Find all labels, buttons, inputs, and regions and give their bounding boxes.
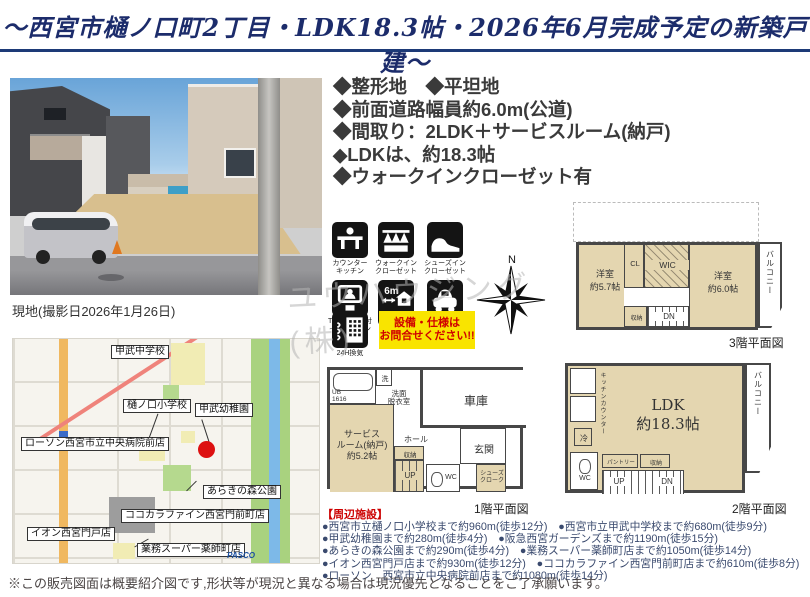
room-storage-3f: 収納: [624, 306, 647, 327]
title-divider: [0, 49, 810, 52]
kitchen-sink-box: [570, 396, 596, 422]
map-park-block: [163, 465, 191, 491]
map-school-block-north: [171, 343, 205, 385]
room-wc-2f: WC: [570, 452, 598, 490]
room-entrance: 玄関: [460, 428, 506, 464]
map-label-lawson: ローソン西宮市立中央病院前店: [21, 437, 169, 451]
stairs-2f: UP DN: [602, 470, 684, 494]
room-east: 洋室 約6.0帖: [689, 245, 755, 327]
kitchen-counter-label: キッチンカウンター: [598, 372, 607, 435]
room-service: サービス ルーム(納戸) 約5.2帖: [330, 404, 394, 492]
photo-cone: [112, 240, 122, 254]
feature-item: ◆整形地 ◆平坦地: [333, 76, 803, 99]
map-location-dot: [198, 441, 215, 458]
photo-caption: 現地(撮影日2026年1月26日): [12, 301, 175, 320]
map-kindergarten-block: [181, 431, 195, 443]
compass-rose: N: [468, 250, 554, 336]
room-wc-1f: WC: [426, 464, 460, 492]
floorplan-1f-body: UB 1616 洗 洗面 脱衣室 車庫 サービス ルーム(納戸) 約5.2帖 ホ…: [327, 367, 523, 489]
equipment-shoes-in-closet: シューズイン クローゼット: [417, 222, 473, 276]
facility-line: ●甲武幼稚園まで約280m(徒歩4分) ●阪急西宮ガーデンズまで約1190m(徒…: [322, 533, 808, 545]
stairs-dn-label: DN: [655, 477, 679, 486]
counter-kitchen-icon: [332, 222, 368, 258]
floorplan-3f: 洋室 約5.7帖 CL WIC 洋室 約6.0帖 収納 DN バルコニー 3階平…: [571, 196, 807, 348]
map-label-cocokara: ココカラファイン西宮門前町店: [121, 509, 269, 523]
photo-manhole: [98, 274, 124, 281]
floorplan-3f-body: 洋室 約5.7帖 CL WIC 洋室 約6.0帖 収納 DN: [576, 242, 758, 330]
room-hall: ホール: [396, 434, 436, 445]
ventilation-24h-icon: [332, 312, 368, 348]
walk-in-closet-icon: [378, 222, 414, 258]
floorplan-2f: キッチンカウンター LDK 約18.3帖 冷 WC パントリー 収納 UP DN…: [560, 358, 808, 508]
stairs-dn-3f: DN: [647, 306, 689, 327]
compass-north-label: N: [508, 254, 516, 266]
kitchen-counter-box: [570, 368, 596, 394]
photo-right-sliver: [280, 78, 322, 228]
equipment-24h-ventilation: 24H換気: [322, 312, 378, 358]
photo-left-house-window: [44, 108, 66, 120]
site-photo: [10, 78, 322, 295]
shoes-in-closet-icon: [427, 222, 463, 258]
map-label-junior-high: 甲武中学校: [111, 345, 169, 359]
room-garage: 車庫: [420, 370, 526, 428]
map-leader: [149, 414, 159, 439]
room-cl: CL: [624, 245, 644, 288]
feature-item: ◆前面道路幅員約6.0m(公道): [333, 99, 803, 122]
balcony-2f: バルコニー: [745, 363, 771, 473]
map-river-water: [269, 339, 280, 564]
photo-utility-pole: [258, 78, 280, 295]
room-storage-1f: 収納: [394, 446, 424, 460]
map-label-kindergarten: 甲武幼稚園: [195, 403, 253, 417]
toilet-2f: [579, 459, 591, 474]
facility-line: ●イオン西宮門戸店まで約930m(徒歩12分) ●ココカラファイン西宮門前町店ま…: [322, 558, 808, 570]
disclaimer-text: ※この販売図面は概要紹介図です,形状等が現況と異なる場合は現況優先となることをご…: [8, 573, 808, 592]
map-supermarket-block: [113, 543, 135, 559]
photo-left-house-balcony: [30, 134, 90, 160]
map-river-bank-right: [280, 339, 290, 564]
washer-box: 洗: [376, 370, 392, 386]
floorplan-2f-body: キッチンカウンター LDK 約18.3帖 冷 WC パントリー 収納 UP DN: [565, 363, 745, 493]
map-provider-logo: PASCO: [227, 551, 255, 560]
facilities-heading: 【周辺施設】: [322, 509, 808, 521]
room-storage-2f: 収納: [640, 454, 670, 468]
page-title: 〜西宮市樋ノ口町2丁目・LDK18.3帖・2026年6月完成予定の新築戸建〜: [0, 8, 810, 78]
roof-outline: [573, 202, 759, 242]
icon-label: 24H換気: [322, 350, 378, 358]
icon-label: ウォークイン クローゼット: [368, 260, 424, 276]
front-road-6m-text: 6m: [384, 286, 398, 297]
equipment-note: 設備・仕様は お問合せください!!: [379, 311, 475, 349]
stairs-up-label: UP: [607, 477, 631, 486]
room-west: 洋室 約5.7帖: [583, 267, 627, 293]
map-label-elementary: 樋ノ口小学校: [123, 399, 191, 413]
floorplan-3f-caption: 3階平面図: [729, 334, 784, 351]
room-pantry: パントリー: [602, 454, 638, 468]
room-wic: WIC: [644, 245, 689, 288]
photo-van-wheel-rear: [92, 250, 106, 264]
room-shoes-closet: シューズ クローク: [476, 464, 506, 492]
feature-list: ◆整形地 ◆平坦地 ◆前面道路幅員約6.0m(公道) ◆間取り：2LDK＋サービ…: [333, 76, 803, 189]
hall-3f: [624, 288, 689, 306]
feature-item: ◆ウォークインクローゼット有: [333, 166, 803, 189]
stairs-up-1f: UP: [394, 460, 424, 492]
facility-line: ●西宮市立樋ノ口小学校まで約960m(徒歩12分) ●西宮市立甲武中学校まで約6…: [322, 521, 808, 533]
room-bath: UB 1616: [330, 370, 376, 404]
room-ldk: LDK 約18.3帖: [628, 396, 708, 434]
map-leader: [201, 419, 209, 442]
feature-item: ◆間取り：2LDK＋サービスルーム(納戸): [333, 121, 803, 144]
photo-right-house-window: [224, 148, 256, 178]
map-river-bank-left: [251, 339, 269, 564]
area-map: 甲武中学校 樋ノ口小学校 甲武幼稚園 ローソン西宮市立中央病院前店 あらきの森公…: [12, 338, 320, 564]
feature-item: ◆LDKは、約18.3帖: [333, 144, 803, 167]
flyer-page: 〜西宮市樋ノ口町2丁目・LDK18.3帖・2026年6月完成予定の新築戸建〜 現…: [0, 0, 810, 597]
facility-line: ●あらきの森公園まで約290m(徒歩4分) ●業務スーパー薬師町店まで約1050…: [322, 545, 808, 557]
balcony-3f: バルコニー: [758, 242, 782, 328]
facilities-section: 【周辺施設】 ●西宮市立樋ノ口小学校まで約960m(徒歩12分) ●西宮市立甲武…: [322, 509, 808, 582]
icon-label: シューズイン クローゼット: [417, 260, 473, 276]
fridge-box: 冷: [574, 428, 592, 446]
map-label-aeon: イオン西宮門戸店: [27, 527, 115, 541]
floorplan-1f: UB 1616 洗 洗面 脱衣室 車庫 サービス ルーム(納戸) 約5.2帖 ホ…: [322, 362, 550, 507]
equipment-walk-in-closet: ウォークイン クローゼット: [368, 222, 424, 276]
photo-van-windows: [32, 218, 110, 230]
tv-monitor-intercom-icon: [332, 280, 368, 316]
map-label-park: あらきの森公園: [203, 485, 281, 499]
photo-van-wheel-front: [36, 250, 50, 264]
